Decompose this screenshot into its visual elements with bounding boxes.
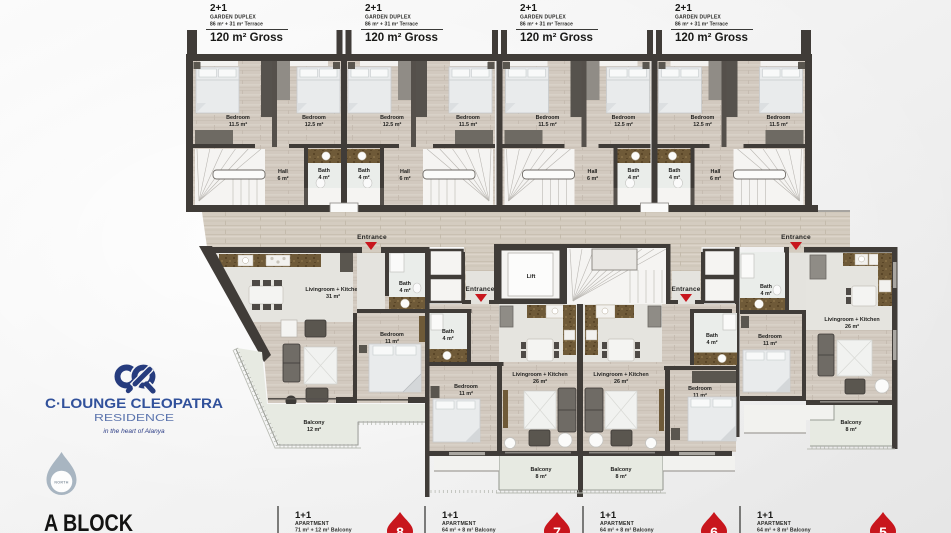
svg-text:11.5 m²: 11.5 m² bbox=[229, 122, 247, 128]
svg-text:12.5 m²: 12.5 m² bbox=[383, 122, 402, 128]
svg-text:71 m² + 12 m² Balcony: 71 m² + 12 m² Balcony bbox=[295, 528, 352, 533]
svg-text:6 m²: 6 m² bbox=[277, 176, 288, 182]
svg-text:7: 7 bbox=[553, 524, 561, 533]
svg-text:4 m²: 4 m² bbox=[628, 175, 639, 181]
svg-text:4 m²: 4 m² bbox=[669, 175, 680, 181]
svg-text:86 m² + 31 m² Terrace: 86 m² + 31 m² Terrace bbox=[675, 22, 728, 28]
svg-text:APARTMENT: APARTMENT bbox=[600, 521, 635, 527]
svg-text:1+1: 1+1 bbox=[295, 510, 312, 521]
svg-text:Bedroom: Bedroom bbox=[226, 115, 250, 121]
svg-text:11 m²: 11 m² bbox=[763, 341, 777, 347]
svg-text:11.5 m²: 11.5 m² bbox=[769, 122, 787, 128]
svg-text:Balcony: Balcony bbox=[841, 420, 862, 426]
svg-text:120 m² Gross: 120 m² Gross bbox=[675, 32, 748, 44]
svg-text:120 m² Gross: 120 m² Gross bbox=[365, 32, 438, 44]
svg-text:64 m² + 8 m² Balcony: 64 m² + 8 m² Balcony bbox=[757, 528, 811, 533]
svg-text:2+1: 2+1 bbox=[675, 3, 692, 14]
svg-text:Balcony: Balcony bbox=[531, 467, 552, 473]
svg-text:4 m²: 4 m² bbox=[318, 175, 329, 181]
svg-text:4 m²: 4 m² bbox=[399, 288, 410, 294]
svg-text:4 m²: 4 m² bbox=[706, 340, 717, 346]
svg-text:11.5 m²: 11.5 m² bbox=[538, 122, 556, 128]
svg-text:Bedroom: Bedroom bbox=[536, 115, 560, 121]
svg-text:26 m²: 26 m² bbox=[533, 379, 547, 385]
svg-text:8: 8 bbox=[396, 524, 404, 533]
svg-text:Bedroom: Bedroom bbox=[612, 115, 636, 121]
svg-text:Bath: Bath bbox=[669, 168, 681, 174]
svg-text:Livingroom + Kitchen: Livingroom + Kitchen bbox=[305, 287, 360, 293]
svg-text:GARDEN DUPLEX: GARDEN DUPLEX bbox=[365, 15, 411, 21]
svg-text:Entrance: Entrance bbox=[672, 286, 701, 293]
svg-text:86 m² + 31 m² Terrace: 86 m² + 31 m² Terrace bbox=[520, 22, 573, 28]
svg-text:86 m² + 31 m² Terrace: 86 m² + 31 m² Terrace bbox=[365, 22, 418, 28]
svg-text:Bedroom: Bedroom bbox=[456, 115, 480, 121]
svg-text:12.5 m²: 12.5 m² bbox=[614, 122, 633, 128]
svg-text:Entrance: Entrance bbox=[466, 286, 495, 293]
svg-text:1+1: 1+1 bbox=[442, 510, 459, 521]
svg-text:Livingroom + Kitchen: Livingroom + Kitchen bbox=[824, 317, 879, 323]
svg-text:120 m² Gross: 120 m² Gross bbox=[520, 32, 593, 44]
svg-text:6: 6 bbox=[710, 524, 718, 533]
svg-text:Bath: Bath bbox=[706, 333, 718, 339]
svg-text:Hall: Hall bbox=[588, 169, 598, 175]
svg-text:2+1: 2+1 bbox=[210, 3, 227, 14]
svg-text:Bath: Bath bbox=[442, 329, 454, 335]
svg-text:6 m²: 6 m² bbox=[710, 176, 721, 182]
svg-text:31 m²: 31 m² bbox=[326, 294, 340, 300]
svg-text:APARTMENT: APARTMENT bbox=[757, 521, 792, 527]
svg-text:Balcony: Balcony bbox=[611, 467, 632, 473]
svg-text:64 m² + 8 m² Balcony: 64 m² + 8 m² Balcony bbox=[442, 528, 496, 533]
svg-text:APARTMENT: APARTMENT bbox=[442, 521, 477, 527]
svg-text:Hall: Hall bbox=[278, 169, 288, 175]
svg-text:12.5 m²: 12.5 m² bbox=[305, 122, 324, 128]
svg-text:11.5 m²: 11.5 m² bbox=[459, 122, 477, 128]
svg-text:120 m² Gross: 120 m² Gross bbox=[210, 32, 283, 44]
svg-text:GARDEN DUPLEX: GARDEN DUPLEX bbox=[675, 15, 721, 21]
svg-text:1+1: 1+1 bbox=[757, 510, 774, 521]
svg-text:26 m²: 26 m² bbox=[845, 324, 859, 330]
svg-text:Entrance: Entrance bbox=[357, 234, 387, 241]
svg-text:Hall: Hall bbox=[400, 169, 410, 175]
svg-text:Hall: Hall bbox=[711, 169, 721, 175]
svg-text:RESIDENCE: RESIDENCE bbox=[94, 413, 175, 424]
svg-text:Balcony: Balcony bbox=[304, 420, 325, 426]
svg-text:2+1: 2+1 bbox=[365, 3, 382, 14]
svg-text:GARDEN DUPLEX: GARDEN DUPLEX bbox=[520, 15, 566, 21]
svg-text:Bath: Bath bbox=[760, 284, 772, 290]
svg-text:8 m²: 8 m² bbox=[615, 474, 626, 480]
svg-text:12 m²: 12 m² bbox=[307, 427, 321, 433]
svg-text:4 m²: 4 m² bbox=[442, 336, 453, 342]
svg-text:6 m²: 6 m² bbox=[399, 176, 410, 182]
svg-text:APARTMENT: APARTMENT bbox=[295, 521, 330, 527]
svg-text:Bedroom: Bedroom bbox=[767, 115, 791, 121]
svg-text:64 m² + 8 m² Balcony: 64 m² + 8 m² Balcony bbox=[600, 528, 654, 533]
svg-text:in the heart of Alanya: in the heart of Alanya bbox=[103, 428, 165, 435]
svg-text:Bedroom: Bedroom bbox=[380, 115, 404, 121]
svg-text:1+1: 1+1 bbox=[600, 510, 617, 521]
svg-text:Bedroom: Bedroom bbox=[380, 332, 404, 338]
svg-text:C·LOUNGE CLEOPATRA: C·LOUNGE CLEOPATRA bbox=[45, 396, 223, 411]
svg-text:Bath: Bath bbox=[358, 168, 370, 174]
svg-text:86 m² + 31 m² Terrace: 86 m² + 31 m² Terrace bbox=[210, 22, 263, 28]
svg-text:5: 5 bbox=[879, 524, 887, 533]
svg-text:Lift: Lift bbox=[527, 274, 536, 280]
svg-text:12.5 m²: 12.5 m² bbox=[693, 122, 712, 128]
svg-text:Bath: Bath bbox=[399, 281, 411, 287]
svg-text:4 m²: 4 m² bbox=[760, 291, 771, 297]
svg-text:6 m²: 6 m² bbox=[587, 176, 598, 182]
svg-text:8 m²: 8 m² bbox=[845, 427, 856, 433]
svg-text:Bedroom: Bedroom bbox=[691, 115, 715, 121]
svg-text:11 m²: 11 m² bbox=[459, 391, 473, 397]
svg-text:Livingroom + Kitchen: Livingroom + Kitchen bbox=[512, 372, 567, 378]
svg-text:26 m²: 26 m² bbox=[614, 379, 628, 385]
svg-text:Bath: Bath bbox=[628, 168, 640, 174]
svg-text:2+1: 2+1 bbox=[520, 3, 537, 14]
svg-text:Livingroom + Kitchen: Livingroom + Kitchen bbox=[593, 372, 648, 378]
svg-text:NORTH: NORTH bbox=[54, 481, 68, 485]
svg-text:Entrance: Entrance bbox=[781, 234, 811, 241]
svg-text:GARDEN DUPLEX: GARDEN DUPLEX bbox=[210, 15, 256, 21]
svg-text:8 m²: 8 m² bbox=[535, 474, 546, 480]
svg-text:4 m²: 4 m² bbox=[358, 175, 369, 181]
svg-text:Bedroom: Bedroom bbox=[758, 334, 782, 340]
svg-text:Bedroom: Bedroom bbox=[302, 115, 326, 121]
svg-text:A BLOCK: A BLOCK bbox=[44, 510, 134, 533]
svg-text:Bath: Bath bbox=[318, 168, 330, 174]
svg-text:Bedroom: Bedroom bbox=[454, 384, 478, 390]
svg-text:Bedroom: Bedroom bbox=[688, 386, 712, 392]
